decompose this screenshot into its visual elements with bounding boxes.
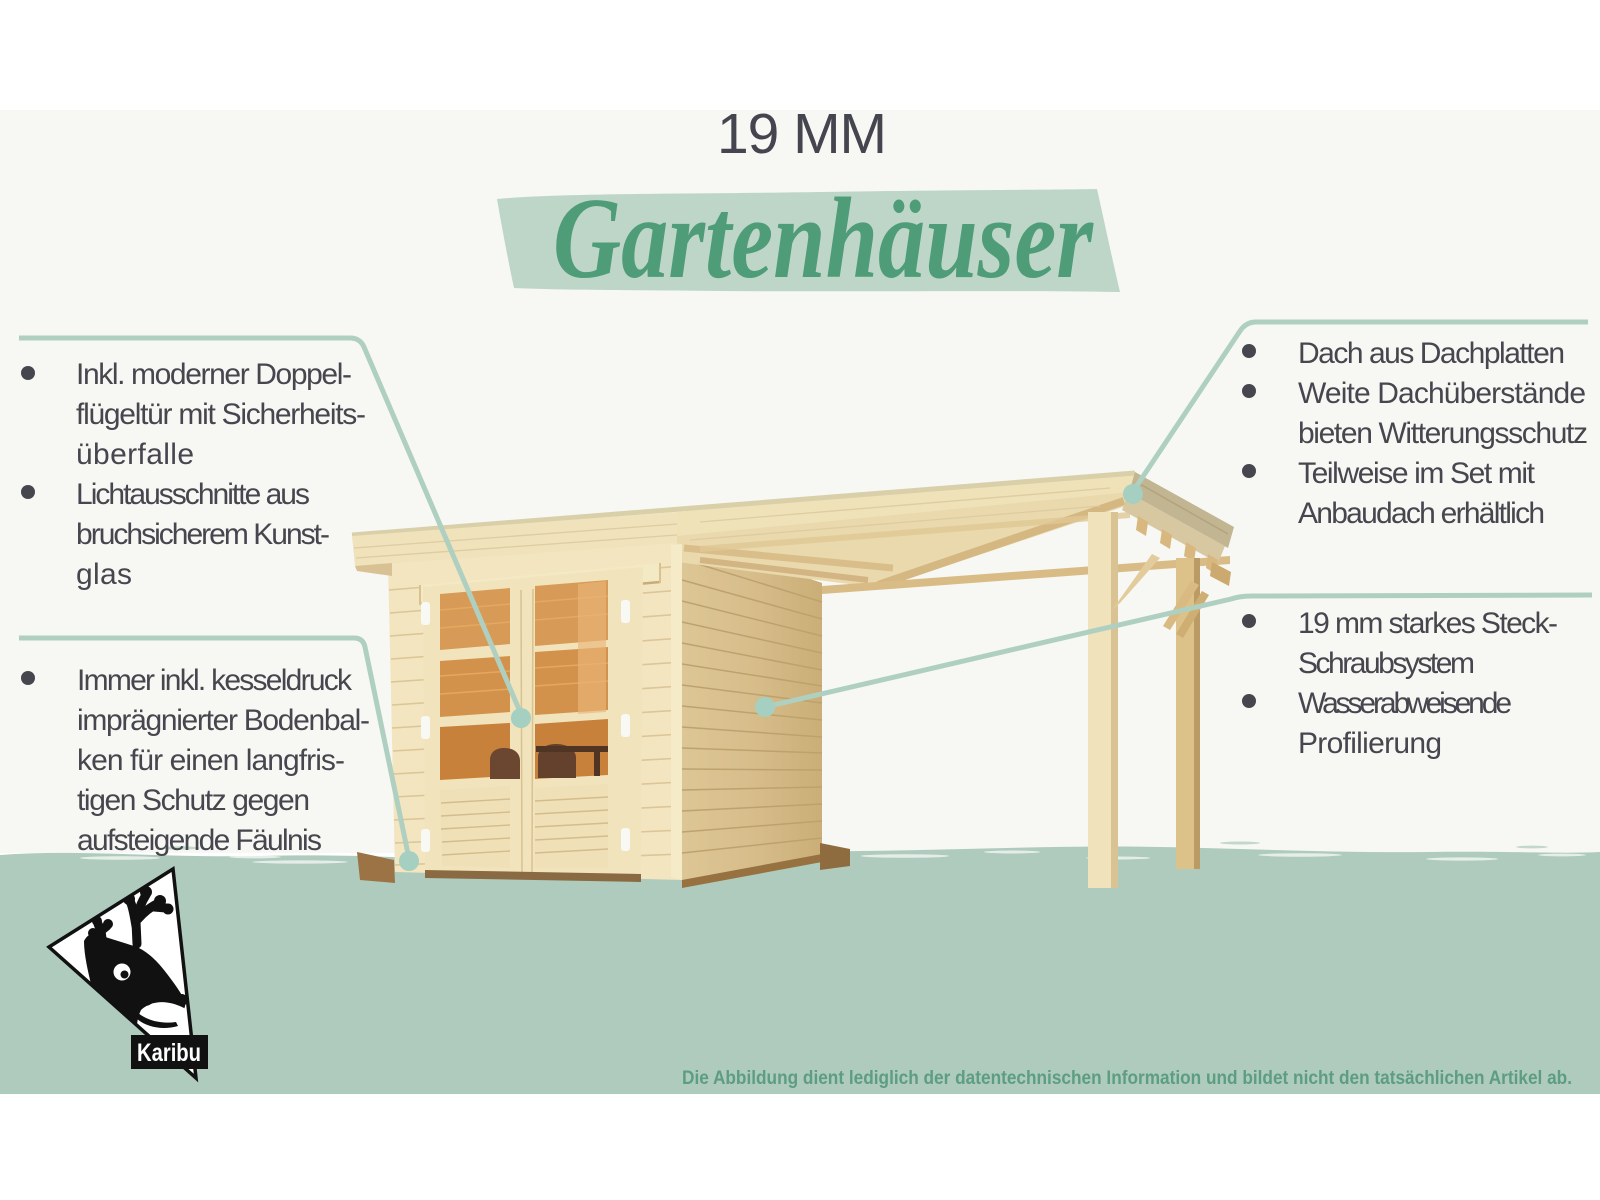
svg-text:bruchsicherem Kunst-: bruchsicherem Kunst- [76,518,330,551]
svg-text:Immer inkl. kesseldruck: Immer inkl. kesseldruck [77,664,353,697]
svg-text:Teilweise im Set mit: Teilweise im Set mit [1298,457,1536,490]
svg-text:19 mm starkes Steck-: 19 mm starkes Steck- [1298,607,1558,640]
svg-text:Inkl. moderner Doppel-: Inkl. moderner Doppel- [76,358,352,391]
svg-text:Anbaudach erhältlich: Anbaudach erhältlich [1298,497,1545,530]
svg-text:flügeltür mit Sicherheits-: flügeltür mit Sicherheits- [76,398,366,431]
svg-text:Wasserabweisende: Wasserabweisende [1298,687,1512,720]
svg-text:Gartenhäuser: Gartenhäuser [553,175,1094,303]
svg-text:aufsteigende Fäulnis: aufsteigende Fäulnis [77,824,322,857]
svg-text:imprägnierter Bodenbal-: imprägnierter Bodenbal- [77,704,370,737]
svg-text:ken für einen langfris-: ken für einen langfris- [77,744,345,777]
svg-text:glas: glas [76,558,132,591]
svg-text:Lichtausschnitte aus: Lichtausschnitte aus [76,478,310,511]
svg-text:Schraubsystem: Schraubsystem [1298,647,1475,680]
svg-text:19 MM: 19 MM [717,102,887,166]
svg-text:Karibu: Karibu [137,1039,201,1067]
svg-text:Weite Dachüberstände: Weite Dachüberstände [1298,377,1586,410]
svg-text:bieten Witterungsschutz: bieten Witterungsschutz [1298,417,1588,450]
svg-text:überfalle: überfalle [76,438,194,471]
svg-text:Die Abbildung dient lediglich: Die Abbildung dient lediglich der datent… [682,1068,1572,1089]
svg-text:Profilierung: Profilierung [1298,727,1442,760]
svg-text:Dach aus Dachplatten: Dach aus Dachplatten [1298,337,1565,370]
svg-text:tigen Schutz gegen: tigen Schutz gegen [77,784,310,817]
